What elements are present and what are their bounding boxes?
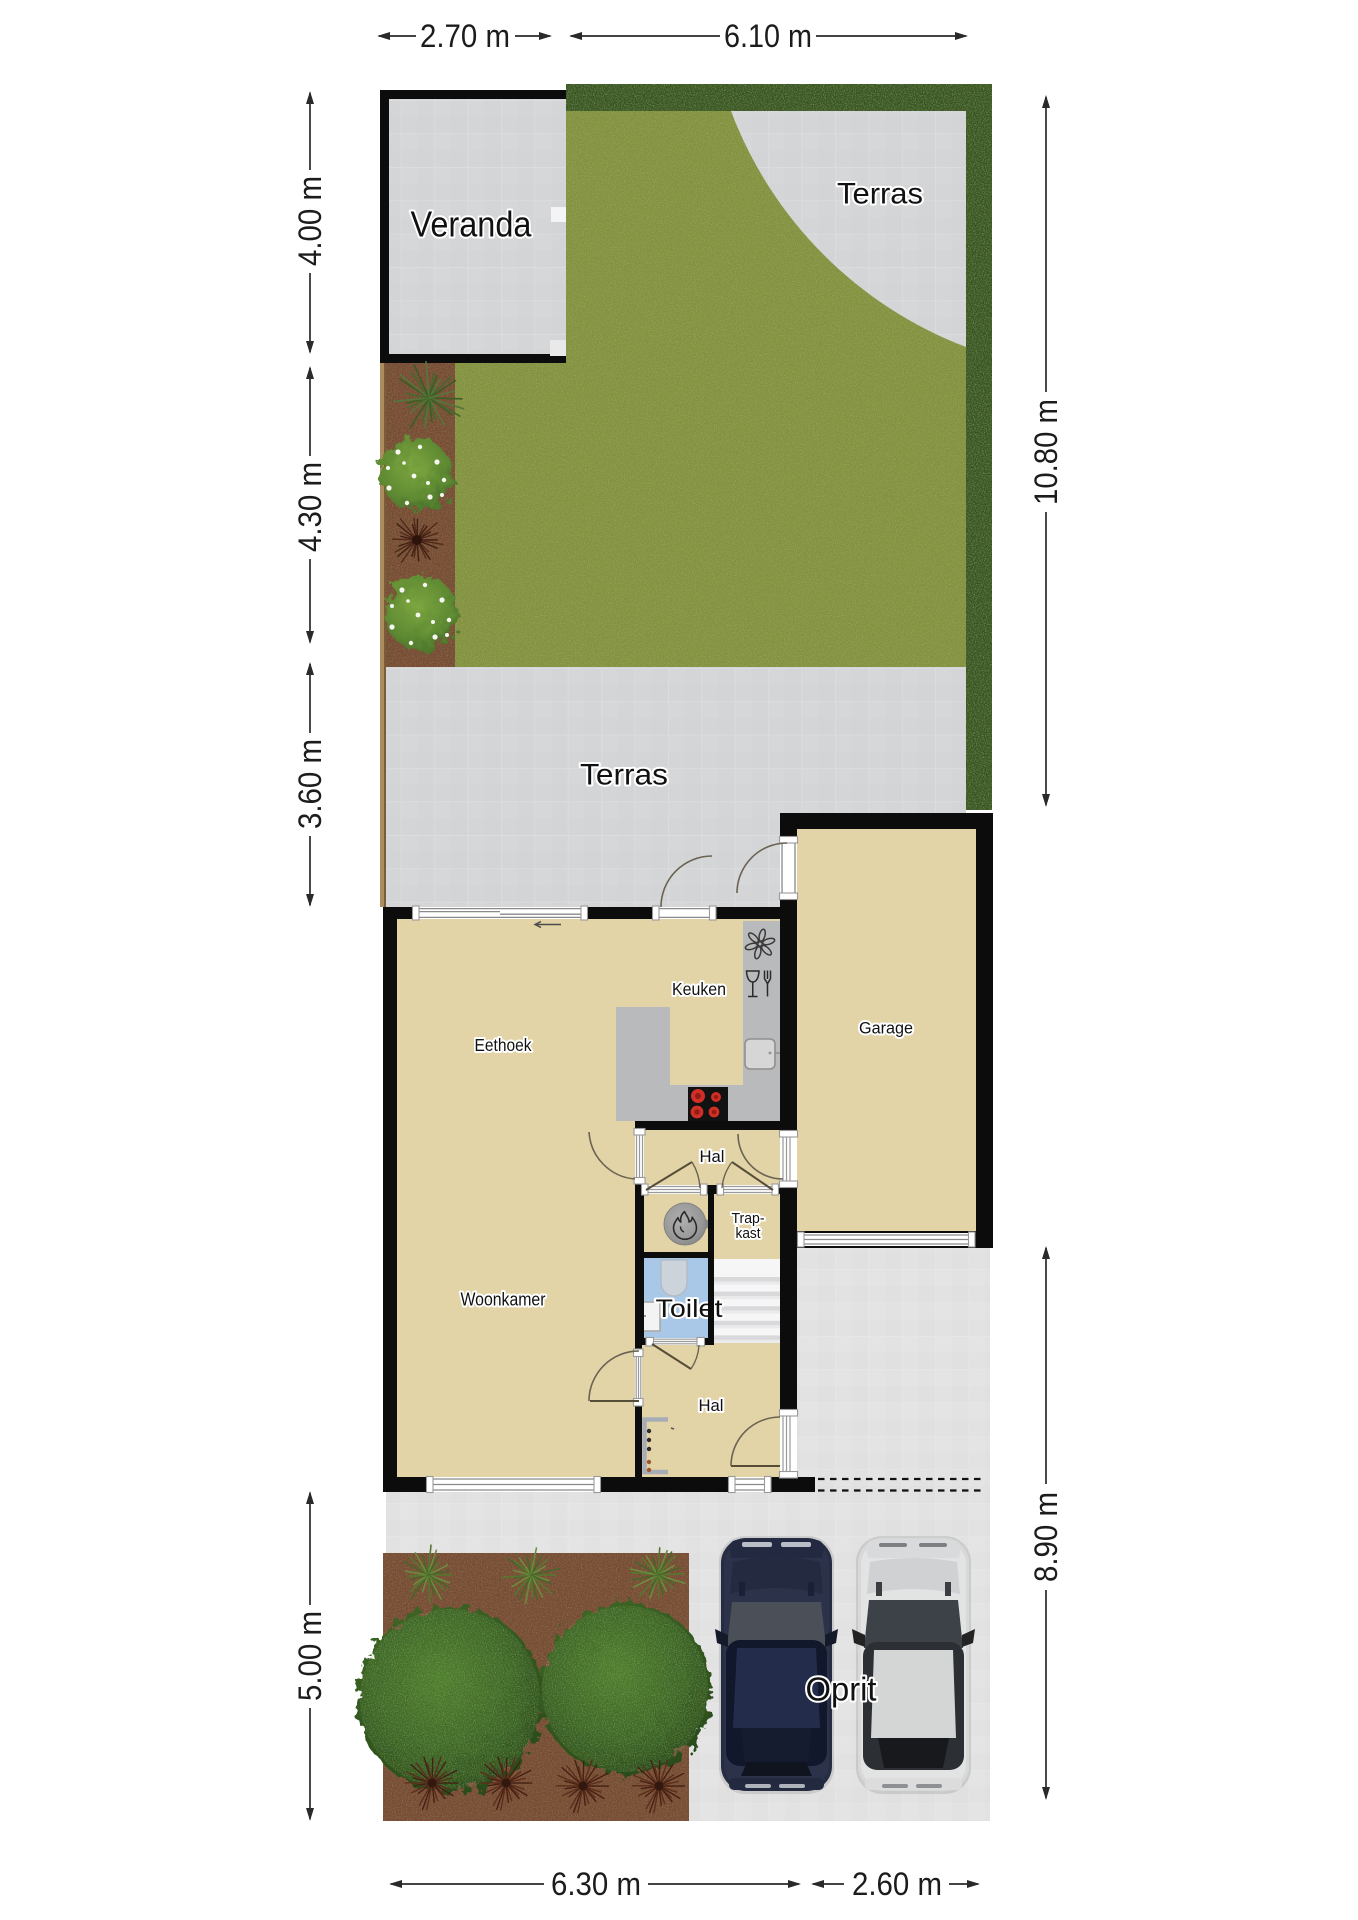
svg-text:Oprit: Oprit: [806, 1671, 877, 1708]
svg-text:6.10 m: 6.10 m: [724, 18, 812, 54]
svg-text:Trap-: Trap-: [732, 1211, 765, 1227]
svg-text:Hal: Hal: [699, 1397, 724, 1415]
svg-text:5.00 m: 5.00 m: [292, 1611, 328, 1701]
svg-text:2.60 m: 2.60 m: [852, 1866, 942, 1902]
svg-text:Woonkamer: Woonkamer: [461, 1289, 546, 1310]
svg-text:Garage: Garage: [859, 1019, 913, 1038]
svg-text:10.80 m: 10.80 m: [1028, 399, 1064, 505]
svg-text:kast: kast: [736, 1226, 761, 1242]
svg-text:8.90 m: 8.90 m: [1028, 1492, 1064, 1582]
svg-text:2.70 m: 2.70 m: [420, 18, 510, 54]
svg-text:Eethoek: Eethoek: [475, 1035, 532, 1055]
svg-text:4.00 m: 4.00 m: [292, 176, 328, 266]
svg-text:Terras: Terras: [580, 759, 668, 792]
svg-text:Hal: Hal: [700, 1148, 725, 1166]
svg-text:6.30 m: 6.30 m: [551, 1866, 641, 1902]
svg-text:Terras: Terras: [837, 178, 923, 211]
svg-text:Keuken: Keuken: [672, 979, 726, 999]
svg-text:3.60 m: 3.60 m: [292, 739, 328, 829]
svg-text:4.30 m: 4.30 m: [292, 462, 328, 552]
svg-text:Veranda: Veranda: [411, 204, 533, 245]
